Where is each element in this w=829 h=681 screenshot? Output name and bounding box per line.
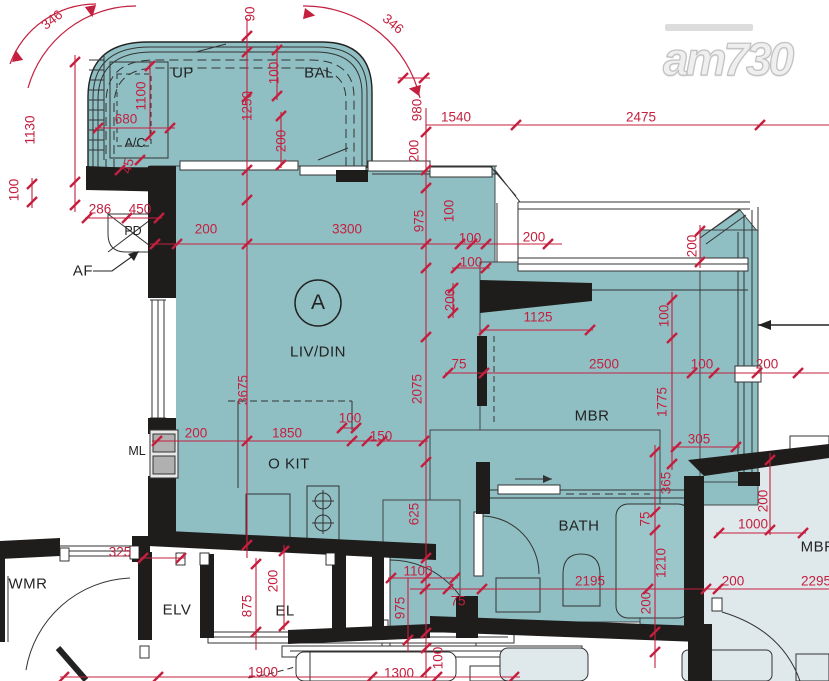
logo-tagline <box>665 24 753 31</box>
dim-arrowhead <box>298 6 315 23</box>
bathtub <box>616 504 690 618</box>
floorplan-drawing <box>0 0 829 681</box>
ml-appliance <box>150 430 178 478</box>
dim-arrowhead <box>9 50 26 67</box>
balcony-fill <box>88 42 372 168</box>
logo-text: am730 <box>663 32 823 86</box>
am730-logo: am730 <box>663 24 823 86</box>
section-arrow <box>758 320 829 330</box>
dim-arrowhead <box>83 0 100 17</box>
af-leader <box>93 251 139 271</box>
dim-arrowhead <box>409 82 426 99</box>
floorplan-canvas: 3469034611301001100680125010020098020015… <box>0 0 829 681</box>
unit-label: A <box>311 291 325 315</box>
room-fills <box>88 42 829 681</box>
